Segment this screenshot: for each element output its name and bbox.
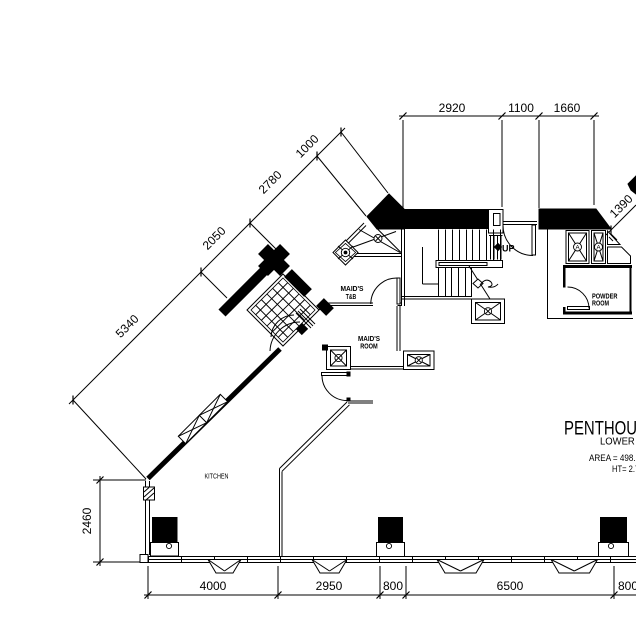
svg-text:1100: 1100 <box>508 101 534 115</box>
svg-text:HT= 2.70 M.: HT= 2.70 M. <box>612 464 636 475</box>
svg-text:KITCHEN: KITCHEN <box>205 474 229 481</box>
svg-text:A: A <box>596 244 601 251</box>
svg-text:800: 800 <box>383 579 403 593</box>
svg-text:A: A <box>575 244 580 251</box>
svg-text:4000: 4000 <box>200 579 227 593</box>
svg-text:MAID'S: MAID'S <box>358 336 380 343</box>
svg-text:ROOM: ROOM <box>592 301 609 308</box>
svg-text:1660: 1660 <box>554 101 581 115</box>
svg-text:800: 800 <box>618 579 636 593</box>
svg-text:AREA = 498.00 SQ.M.: AREA = 498.00 SQ.M. <box>589 453 636 464</box>
svg-text:MAID'S: MAID'S <box>341 286 364 293</box>
svg-text:6500: 6500 <box>497 579 524 593</box>
svg-text:2460: 2460 <box>80 507 94 534</box>
svg-text:2920: 2920 <box>439 101 466 115</box>
svg-text:UP: UP <box>502 244 515 254</box>
svg-text:POWDER: POWDER <box>592 294 618 301</box>
svg-text:T&B: T&B <box>346 294 357 301</box>
svg-text:2950: 2950 <box>316 579 343 593</box>
svg-text:ROOM: ROOM <box>360 344 378 351</box>
svg-text:LOWER FLOOR: LOWER FLOOR <box>600 437 636 448</box>
